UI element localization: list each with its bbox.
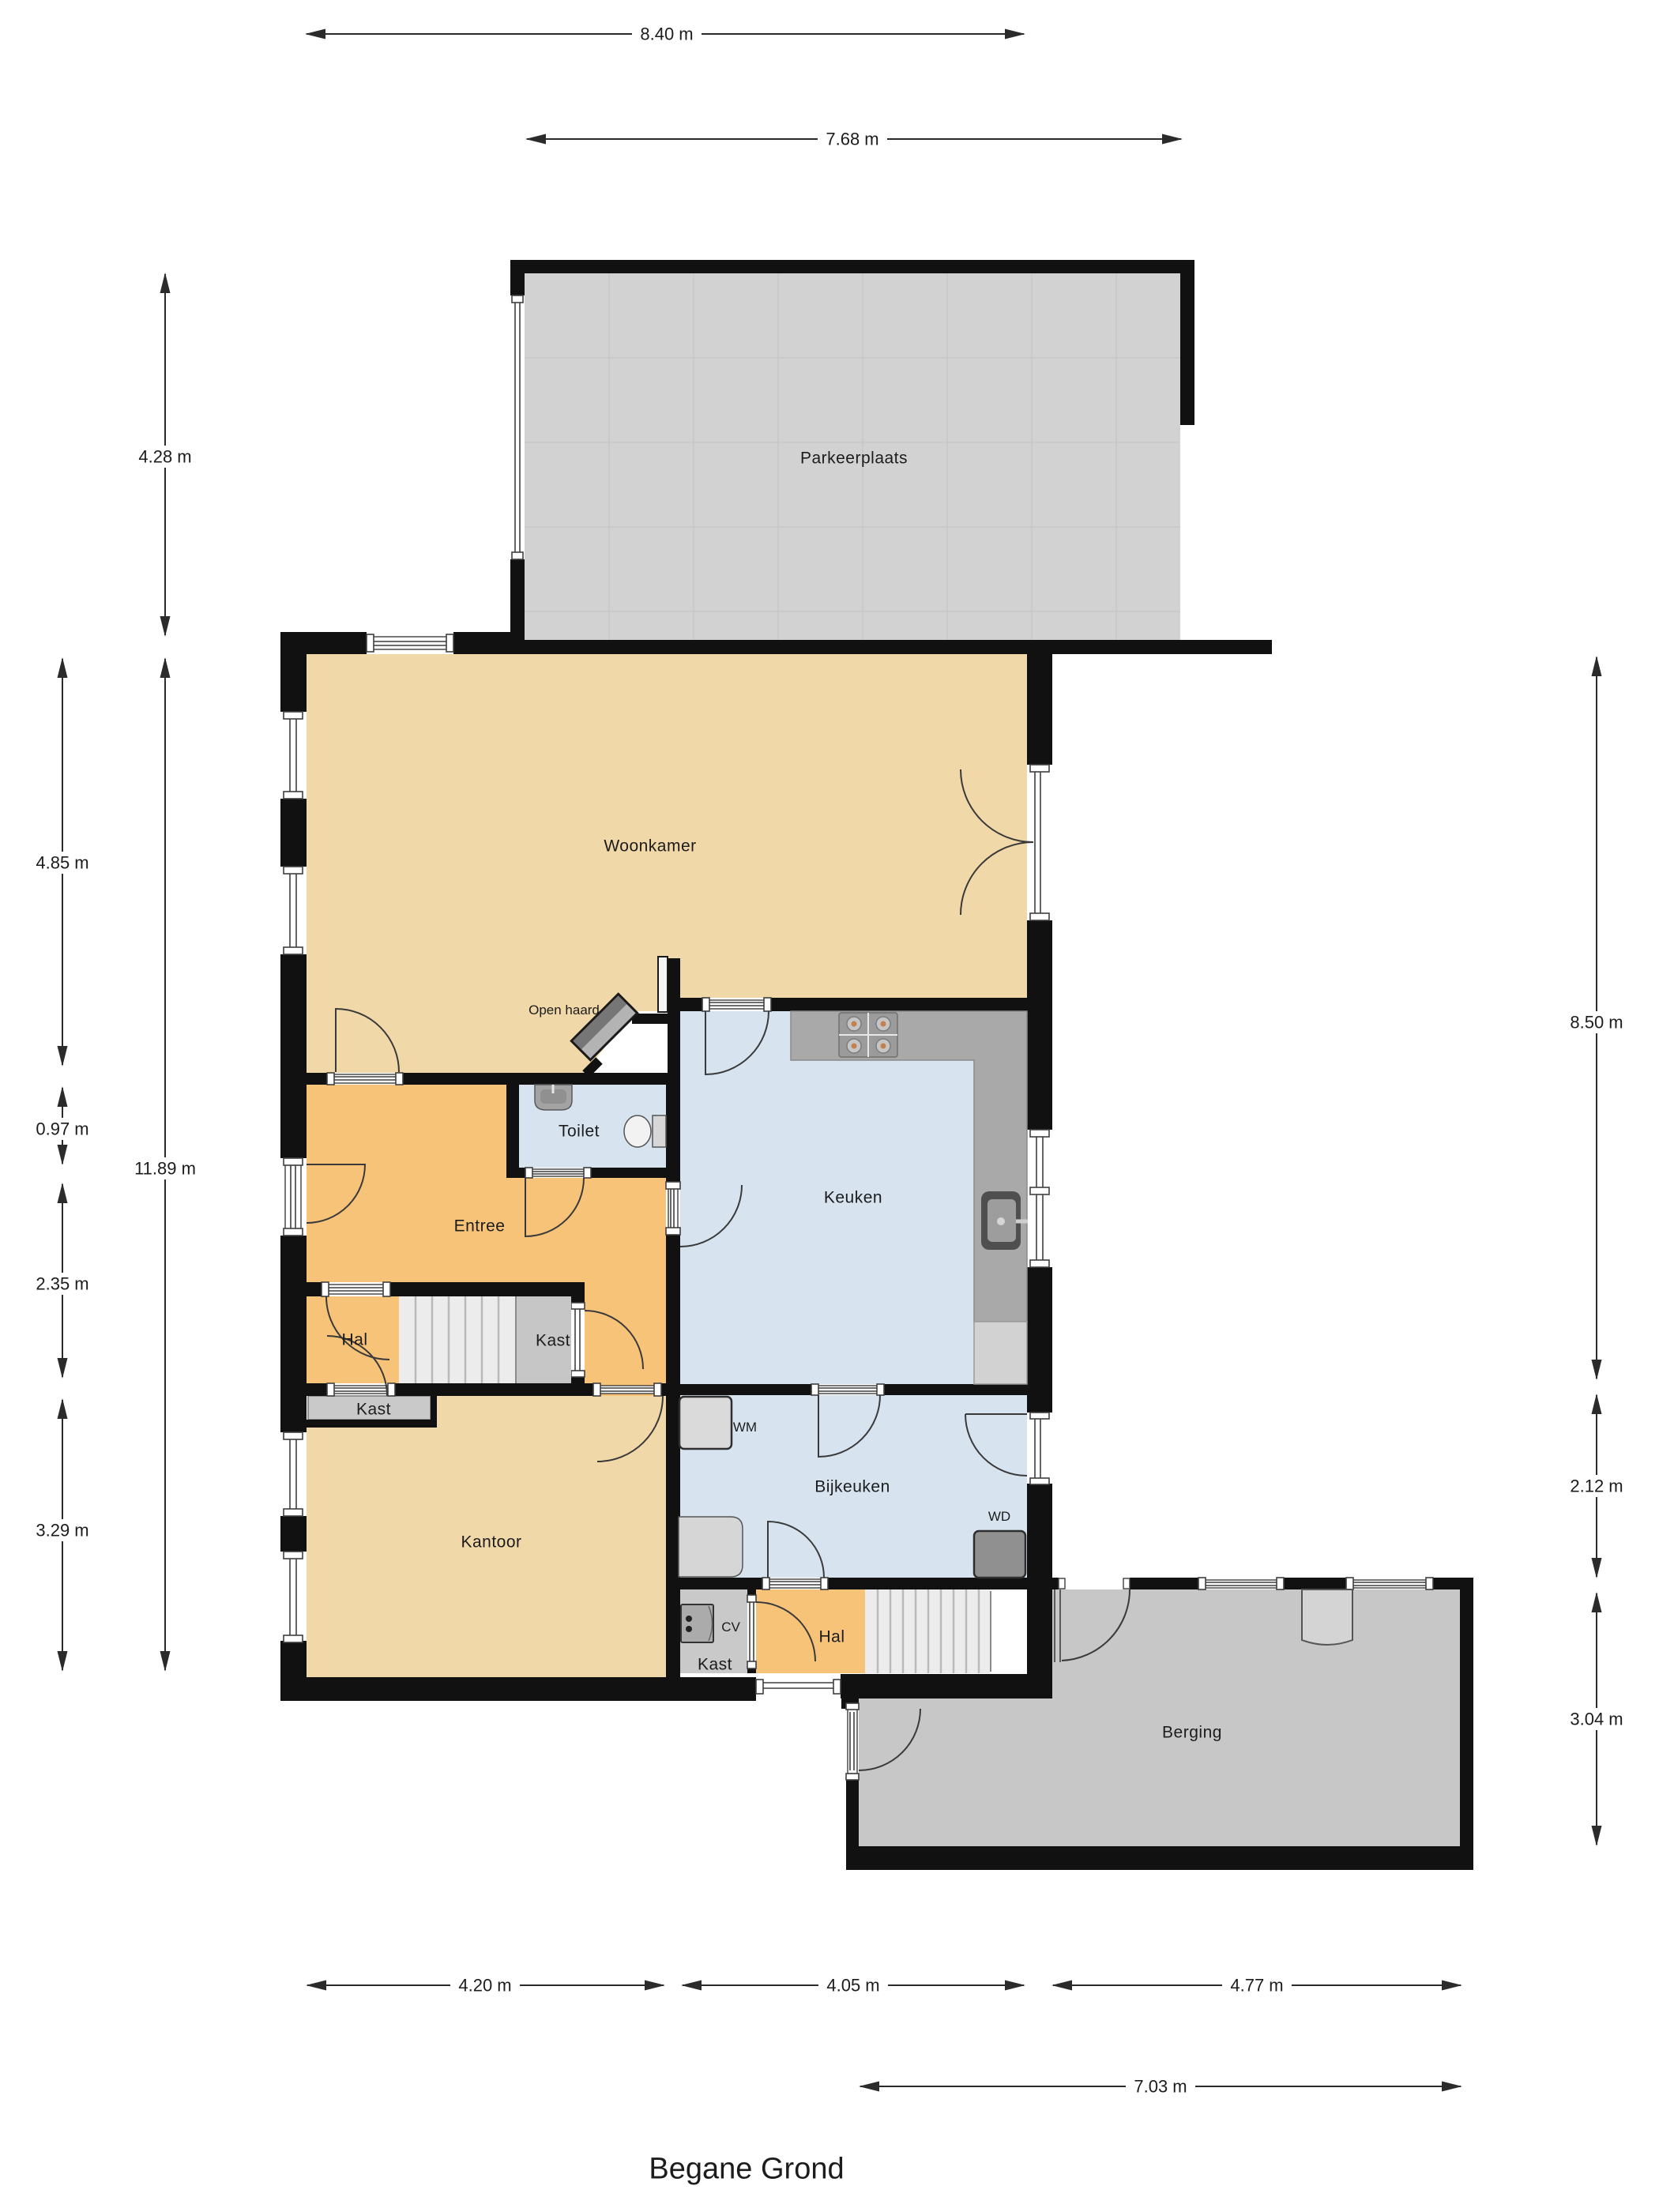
svg-text:Hal: Hal [818, 1627, 845, 1646]
svg-text:CV: CV [721, 1619, 740, 1635]
svg-text:Kast: Kast [698, 1655, 732, 1673]
svg-text:Bijkeuken: Bijkeuken [814, 1477, 890, 1495]
svg-text:Toilet: Toilet [559, 1122, 600, 1140]
svg-text:Woonkamer: Woonkamer [604, 837, 696, 855]
svg-text:Hal: Hal [341, 1330, 367, 1349]
svg-text:4.85 m: 4.85 m [36, 853, 88, 873]
svg-text:8.50 m: 8.50 m [1570, 1013, 1623, 1033]
svg-text:3.04 m: 3.04 m [1570, 1710, 1623, 1729]
svg-text:Parkeerplaats: Parkeerplaats [800, 449, 908, 467]
svg-text:Open haard: Open haard [529, 1003, 600, 1018]
svg-text:Keuken: Keuken [824, 1188, 882, 1206]
svg-text:0.97 m: 0.97 m [36, 1119, 88, 1139]
svg-text:Entree: Entree [454, 1217, 506, 1235]
svg-text:4.77 m: 4.77 m [1230, 1976, 1283, 1996]
svg-text:Begane Grond: Begane Grond [649, 2152, 844, 2185]
svg-text:Kast: Kast [536, 1331, 570, 1349]
svg-text:WM: WM [733, 1420, 757, 1435]
svg-text:WD: WD [988, 1509, 1010, 1524]
svg-text:Kast: Kast [356, 1400, 391, 1418]
svg-text:Berging: Berging [1162, 1723, 1222, 1741]
svg-text:7.68 m: 7.68 m [826, 130, 878, 149]
svg-text:3.29 m: 3.29 m [36, 1521, 88, 1540]
svg-text:4.20 m: 4.20 m [458, 1976, 511, 1996]
svg-text:4.05 m: 4.05 m [826, 1976, 879, 1996]
svg-text:8.40 m: 8.40 m [640, 24, 693, 44]
svg-text:7.03 m: 7.03 m [1134, 2077, 1187, 2097]
svg-text:2.35 m: 2.35 m [36, 1274, 88, 1294]
svg-text:11.89 m: 11.89 m [134, 1159, 196, 1179]
svg-text:4.28 m: 4.28 m [138, 447, 191, 467]
svg-text:2.12 m: 2.12 m [1570, 1477, 1623, 1496]
svg-text:Kantoor: Kantoor [461, 1533, 521, 1551]
